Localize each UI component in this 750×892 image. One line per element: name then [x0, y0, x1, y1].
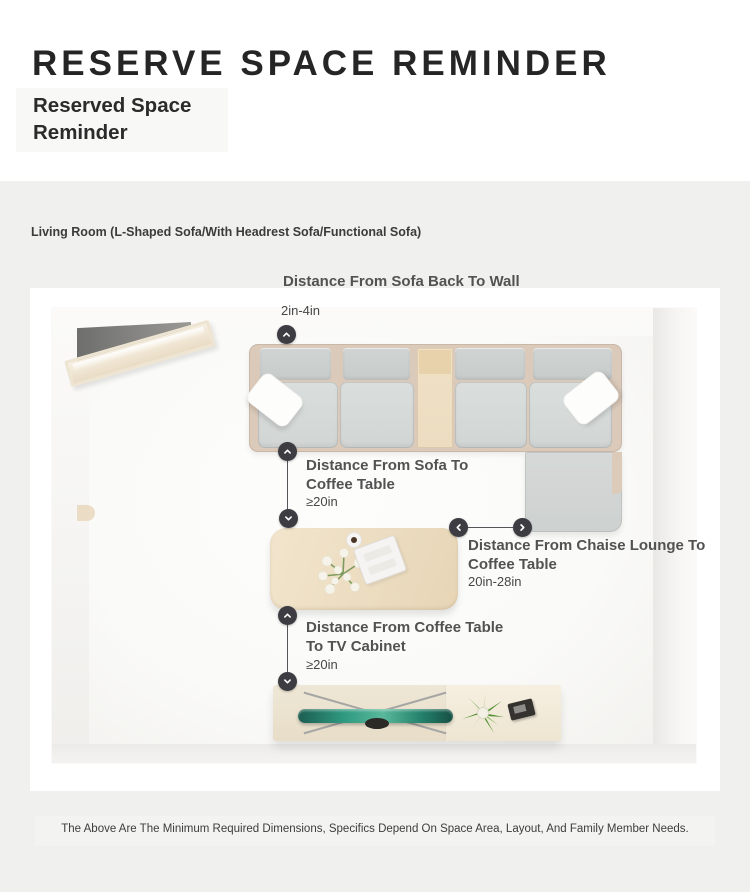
annotation-value-coffee-tv: ≥20in [306, 657, 338, 672]
connector-line [287, 461, 288, 511]
tv-cabinet [273, 685, 561, 741]
chevron-down-icon [278, 672, 297, 691]
connector-line [287, 625, 288, 672]
sofa-seat-cushion [340, 382, 414, 448]
chaise-lounge [525, 452, 622, 532]
annotation-value-sofa-back-wall: 2in-4in [281, 303, 320, 318]
annotation-value-chaise-coffee: 20in-28in [468, 574, 522, 589]
chevron-up-icon [277, 325, 296, 344]
sofa-back-cushion [455, 348, 525, 380]
chevron-right-icon [513, 518, 532, 537]
sofa-seat-cushion [455, 382, 527, 448]
connector-line [467, 527, 513, 528]
annotation-label-sofa-back-wall: Distance From Sofa Back To Wall [283, 272, 520, 291]
bottom-wall [52, 744, 696, 763]
annotation-value-sofa-coffee: ≥20in [306, 494, 338, 509]
header: RESERVE SPACE REMINDER Reserved Space Re… [0, 0, 750, 181]
coffee-table [270, 528, 458, 610]
sofa-console-top [419, 350, 451, 374]
chevron-left-icon [449, 518, 468, 537]
coffee-cup [346, 532, 362, 548]
page-title: RESERVE SPACE REMINDER [32, 44, 611, 84]
door-detail [77, 505, 95, 521]
chevron-up-icon [278, 606, 297, 625]
room-type-label: Living Room (L-Shaped Sofa/With Headrest… [31, 225, 421, 239]
chevron-up-icon [278, 442, 297, 461]
footer-note: The Above Are The Minimum Required Dimen… [0, 823, 750, 835]
sofa-back-cushion [343, 348, 410, 380]
page-subtitle: Reserved Space Reminder [33, 92, 191, 146]
potted-plant-icon [458, 687, 508, 739]
chevron-down-icon [279, 509, 298, 528]
tray-item [368, 558, 397, 575]
chaise-frame [612, 452, 622, 494]
page: RESERVE SPACE REMINDER Reserved Space Re… [0, 0, 750, 892]
annotation-label-sofa-coffee: Distance From Sofa To Coffee Table [306, 456, 484, 494]
annotation-label-chaise-coffee: Distance From Chaise Lounge To Coffee Ta… [468, 536, 708, 574]
sofa-console-tray [417, 348, 453, 448]
tv-mount [365, 718, 389, 729]
annotation-label-coffee-tv: Distance From Coffee Table To TV Cabinet [306, 618, 520, 656]
